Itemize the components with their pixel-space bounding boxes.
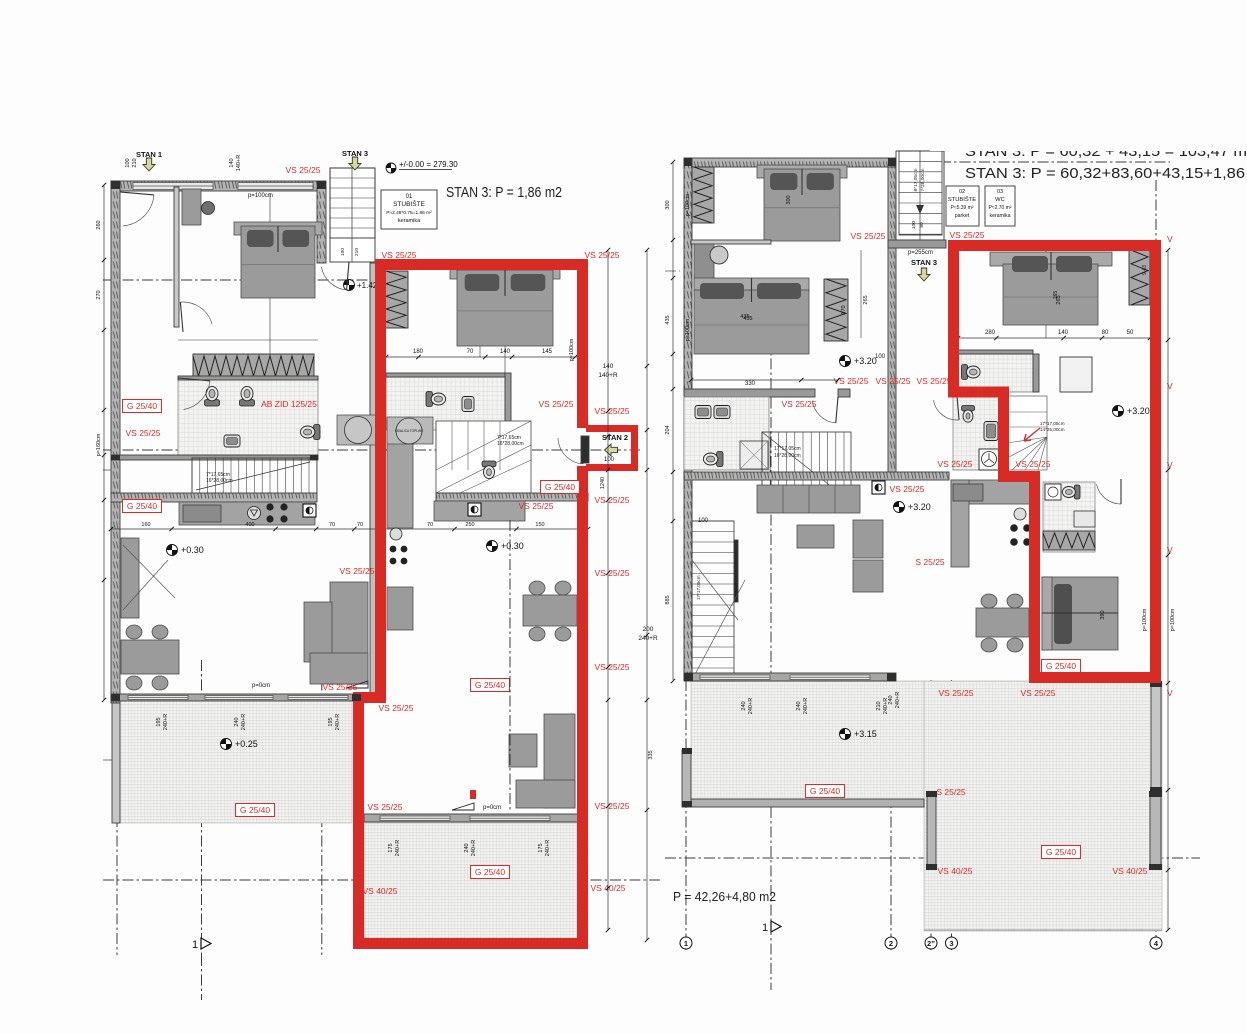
svg-text:16*28,00cm: 16*28,00cm: [206, 478, 233, 484]
svg-text:195: 195: [328, 717, 334, 726]
svg-text:160: 160: [141, 522, 150, 528]
svg-text:VS 25/25: VS 25/25: [323, 682, 358, 692]
svg-text:8*17,05cm: 8*17,05cm: [913, 169, 919, 192]
svg-text:400: 400: [245, 522, 254, 528]
svg-text:VS 25/25: VS 25/25: [834, 376, 869, 386]
svg-text:p=100cm: p=100cm: [1170, 608, 1176, 631]
svg-text:50: 50: [1127, 330, 1134, 336]
svg-text:14*25,00cm: 14*25,00cm: [1040, 427, 1065, 432]
svg-text:175: 175: [388, 843, 394, 852]
svg-text:17*17,05cm: 17*17,05cm: [696, 575, 701, 600]
svg-text:VS 25/25: VS 25/25: [368, 802, 403, 812]
svg-text:STAN 3: STAN 3: [911, 258, 937, 267]
svg-text:100: 100: [604, 457, 615, 463]
svg-text:VS 25/25: VS 25/25: [782, 399, 817, 409]
svg-text:240+R: 240+R: [395, 840, 401, 856]
svg-text:VS 25/25: VS 25/25: [595, 495, 630, 505]
svg-text:240: 240: [741, 701, 747, 710]
svg-text:VS 25/25: VS 25/25: [938, 459, 973, 469]
svg-text:240+R: 240+R: [638, 635, 658, 642]
svg-text:parket: parket: [955, 213, 970, 219]
svg-text:STAN 3: P = 1,86 m2: STAN 3: P = 1,86 m2: [446, 184, 562, 201]
svg-text:p=100cm: p=100cm: [685, 193, 691, 216]
svg-text:435: 435: [665, 315, 671, 324]
svg-text:p=255cm: p=255cm: [908, 250, 933, 256]
svg-text:145: 145: [542, 349, 553, 355]
svg-text:70: 70: [357, 522, 363, 528]
svg-text:G 25/40: G 25/40: [475, 680, 506, 690]
svg-text:1: 1: [192, 939, 198, 951]
svg-text:STUBIŠTE: STUBIŠTE: [948, 196, 976, 203]
svg-text:240+R: 240+R: [471, 840, 477, 856]
svg-text:VS 25/25: VS 25/25: [595, 662, 630, 672]
svg-text:VS 25/25: VS 25/25: [595, 801, 630, 811]
svg-text:200: 200: [643, 626, 654, 633]
svg-text:330: 330: [745, 381, 756, 387]
svg-text:VS 25/25: VS 25/25: [286, 165, 321, 175]
svg-text:280: 280: [985, 330, 996, 336]
svg-text:180: 180: [413, 349, 424, 355]
svg-text:240+R: 240+R: [748, 698, 754, 714]
svg-text:2: 2: [889, 939, 893, 948]
svg-text:240+R: 240+R: [241, 714, 247, 730]
svg-text:keramika: keramika: [398, 218, 421, 224]
svg-text:p=0cm: p=0cm: [252, 683, 270, 689]
svg-text:80: 80: [1102, 330, 1109, 336]
svg-text:240+R: 240+R: [895, 692, 901, 708]
svg-text:+0.30: +0.30: [181, 545, 204, 555]
svg-text:P≈2.48*0.75=1.86 m²: P≈2.48*0.75=1.86 m²: [386, 210, 432, 216]
svg-text:140: 140: [1058, 330, 1069, 336]
svg-text:01: 01: [406, 194, 413, 200]
svg-text:+3.15: +3.15: [854, 729, 877, 739]
svg-text:P = 42,26+4,80 m2: P = 42,26+4,80 m2: [673, 889, 776, 904]
svg-text:+/-0.00 = 279.30: +/-0.00 = 279.30: [399, 160, 458, 169]
svg-text:9.43: 9.43: [1142, 265, 1148, 275]
svg-text:80: 80: [919, 222, 925, 228]
svg-text:885: 885: [665, 595, 671, 604]
svg-text:VS 25/25: VS 25/25: [595, 406, 630, 416]
svg-text:p=100cm: p=100cm: [248, 193, 273, 199]
svg-text:S 25/25: S 25/25: [915, 557, 945, 567]
svg-text:70: 70: [467, 349, 474, 355]
svg-text:260: 260: [96, 220, 102, 229]
svg-text:390: 390: [1100, 610, 1106, 619]
svg-text:100: 100: [911, 221, 917, 229]
svg-text:G 25/40: G 25/40: [475, 867, 506, 877]
svg-text:265: 265: [863, 295, 869, 304]
svg-text:G 25/40: G 25/40: [1046, 661, 1077, 671]
svg-text:VS 25/25: VS 25/25: [851, 231, 886, 241]
svg-text:SIDALICA TOPLINE: SIDALICA TOPLINE: [395, 429, 424, 433]
svg-text:G 25/40: G 25/40: [810, 786, 841, 796]
svg-text:S 25/25: S 25/25: [936, 787, 966, 797]
svg-text:335: 335: [648, 750, 654, 759]
svg-text:VS 25/25: VS 25/25: [539, 399, 574, 409]
svg-text:175: 175: [538, 843, 544, 852]
svg-text:2”: 2”: [927, 939, 935, 948]
svg-text:VS 25/25: VS 25/25: [1016, 459, 1051, 469]
svg-text:VS 25/25: VS 25/25: [917, 376, 952, 386]
svg-text:VS 25/25: VS 25/25: [126, 428, 161, 438]
svg-text:140: 140: [500, 349, 511, 355]
svg-text:240+R: 240+R: [163, 714, 169, 730]
svg-text:p=100cm: p=100cm: [569, 338, 575, 361]
svg-text:265: 265: [1056, 295, 1062, 304]
svg-text:VS 25/25: VS 25/25: [519, 501, 554, 511]
svg-text:100: 100: [340, 248, 346, 256]
svg-text:V: V: [1167, 234, 1173, 244]
svg-text:+0.25: +0.25: [235, 739, 258, 749]
svg-text:195: 195: [156, 717, 162, 726]
svg-text:240: 240: [234, 717, 240, 726]
svg-text:+3.20: +3.20: [854, 356, 877, 366]
svg-text:STUBIŠTE: STUBIŠTE: [393, 199, 425, 208]
svg-text:300: 300: [665, 200, 671, 209]
svg-text:VS 25/25: VS 25/25: [595, 568, 630, 578]
svg-text:100: 100: [875, 354, 886, 360]
svg-text:7*28,00cm: 7*28,00cm: [920, 169, 926, 192]
svg-text:02: 02: [959, 189, 965, 195]
svg-text:VS 40/25: VS 40/25: [1113, 866, 1148, 876]
svg-text:VS 25/25: VS 25/25: [1021, 688, 1056, 698]
svg-text:+3.20: +3.20: [908, 502, 931, 512]
svg-text:1: 1: [684, 939, 688, 948]
svg-text:210: 210: [132, 158, 138, 167]
svg-text:VS 25/25: VS 25/25: [950, 230, 985, 240]
svg-text:435: 435: [740, 314, 749, 320]
svg-text:P≈5.39 m²: P≈5.39 m²: [950, 205, 973, 211]
svg-text:AB ZID 125/25: AB ZID 125/25: [261, 399, 317, 409]
svg-text:VS 25/25: VS 25/25: [939, 688, 974, 698]
svg-text:270: 270: [96, 290, 102, 299]
svg-text:1: 1: [762, 922, 768, 934]
svg-text:G 25/40: G 25/40: [545, 482, 576, 492]
svg-text:3: 3: [949, 939, 953, 948]
svg-text:G 25/40: G 25/40: [1046, 847, 1077, 857]
svg-text:VS 25/25: VS 25/25: [876, 376, 911, 386]
svg-text:300: 300: [786, 195, 792, 204]
svg-text:17*17,05cm: 17*17,05cm: [774, 446, 801, 452]
svg-text:VS 25/25: VS 25/25: [340, 566, 375, 576]
svg-text:140: 140: [229, 158, 235, 167]
svg-text:240+R: 240+R: [335, 714, 341, 730]
svg-text:VS 25/25: VS 25/25: [890, 484, 925, 494]
svg-text:VS 40/25: VS 40/25: [938, 866, 973, 876]
svg-text:+3.20: +3.20: [1127, 406, 1150, 416]
svg-text:70: 70: [329, 522, 335, 528]
svg-text:100: 100: [698, 518, 709, 524]
svg-text:140+R: 140+R: [236, 155, 242, 171]
svg-text:70: 70: [427, 522, 433, 528]
svg-text:G 25/40: G 25/40: [240, 805, 271, 815]
svg-text:170: 170: [841, 305, 847, 314]
svg-text:VS 25/25: VS 25/25: [382, 250, 417, 260]
svg-text:G 25/40: G 25/40: [127, 401, 158, 411]
svg-text:P≈2.70 m²: P≈2.70 m²: [988, 205, 1011, 211]
svg-text:210: 210: [354, 248, 360, 256]
svg-text:240+R: 240+R: [545, 840, 551, 856]
svg-text:G 25/40: G 25/40: [127, 501, 158, 511]
svg-text:17*17,05cm: 17*17,05cm: [1040, 421, 1065, 426]
svg-text:+1.42: +1.42: [357, 281, 378, 290]
svg-text:03: 03: [997, 189, 1003, 195]
svg-text:150: 150: [535, 522, 544, 528]
svg-text:WC: WC: [995, 197, 1005, 203]
svg-text:keramika: keramika: [989, 213, 1010, 219]
svg-text:p=100cm: p=100cm: [685, 318, 691, 341]
svg-text:VS 25/25: VS 25/25: [379, 703, 414, 713]
svg-text:240: 240: [888, 695, 894, 704]
svg-text:16*28,00cm: 16*28,00cm: [774, 453, 801, 459]
svg-text:1240: 1240: [600, 477, 606, 489]
svg-text:100: 100: [125, 158, 131, 167]
svg-text:p=0cm: p=0cm: [483, 805, 501, 811]
svg-text:VS 40/25: VS 40/25: [363, 886, 398, 896]
svg-text:+0.30: +0.30: [501, 541, 524, 551]
svg-text:STAN 3: P = 60,32+83,60+43,15+: STAN 3: P = 60,32+83,60+43,15+1,86: [965, 165, 1245, 182]
svg-text:204: 204: [665, 425, 671, 434]
svg-text:250: 250: [465, 522, 474, 528]
svg-text:240: 240: [796, 701, 802, 710]
svg-text:210: 210: [876, 701, 882, 710]
svg-text:240+R: 240+R: [803, 698, 809, 714]
svg-text:p=100cm: p=100cm: [1142, 608, 1148, 631]
svg-text:240: 240: [464, 843, 470, 852]
svg-text:16*28,00cm: 16*28,00cm: [497, 441, 524, 447]
svg-text:VS 25/25: VS 25/25: [585, 250, 620, 260]
svg-text:p=160cm: p=160cm: [96, 433, 102, 456]
